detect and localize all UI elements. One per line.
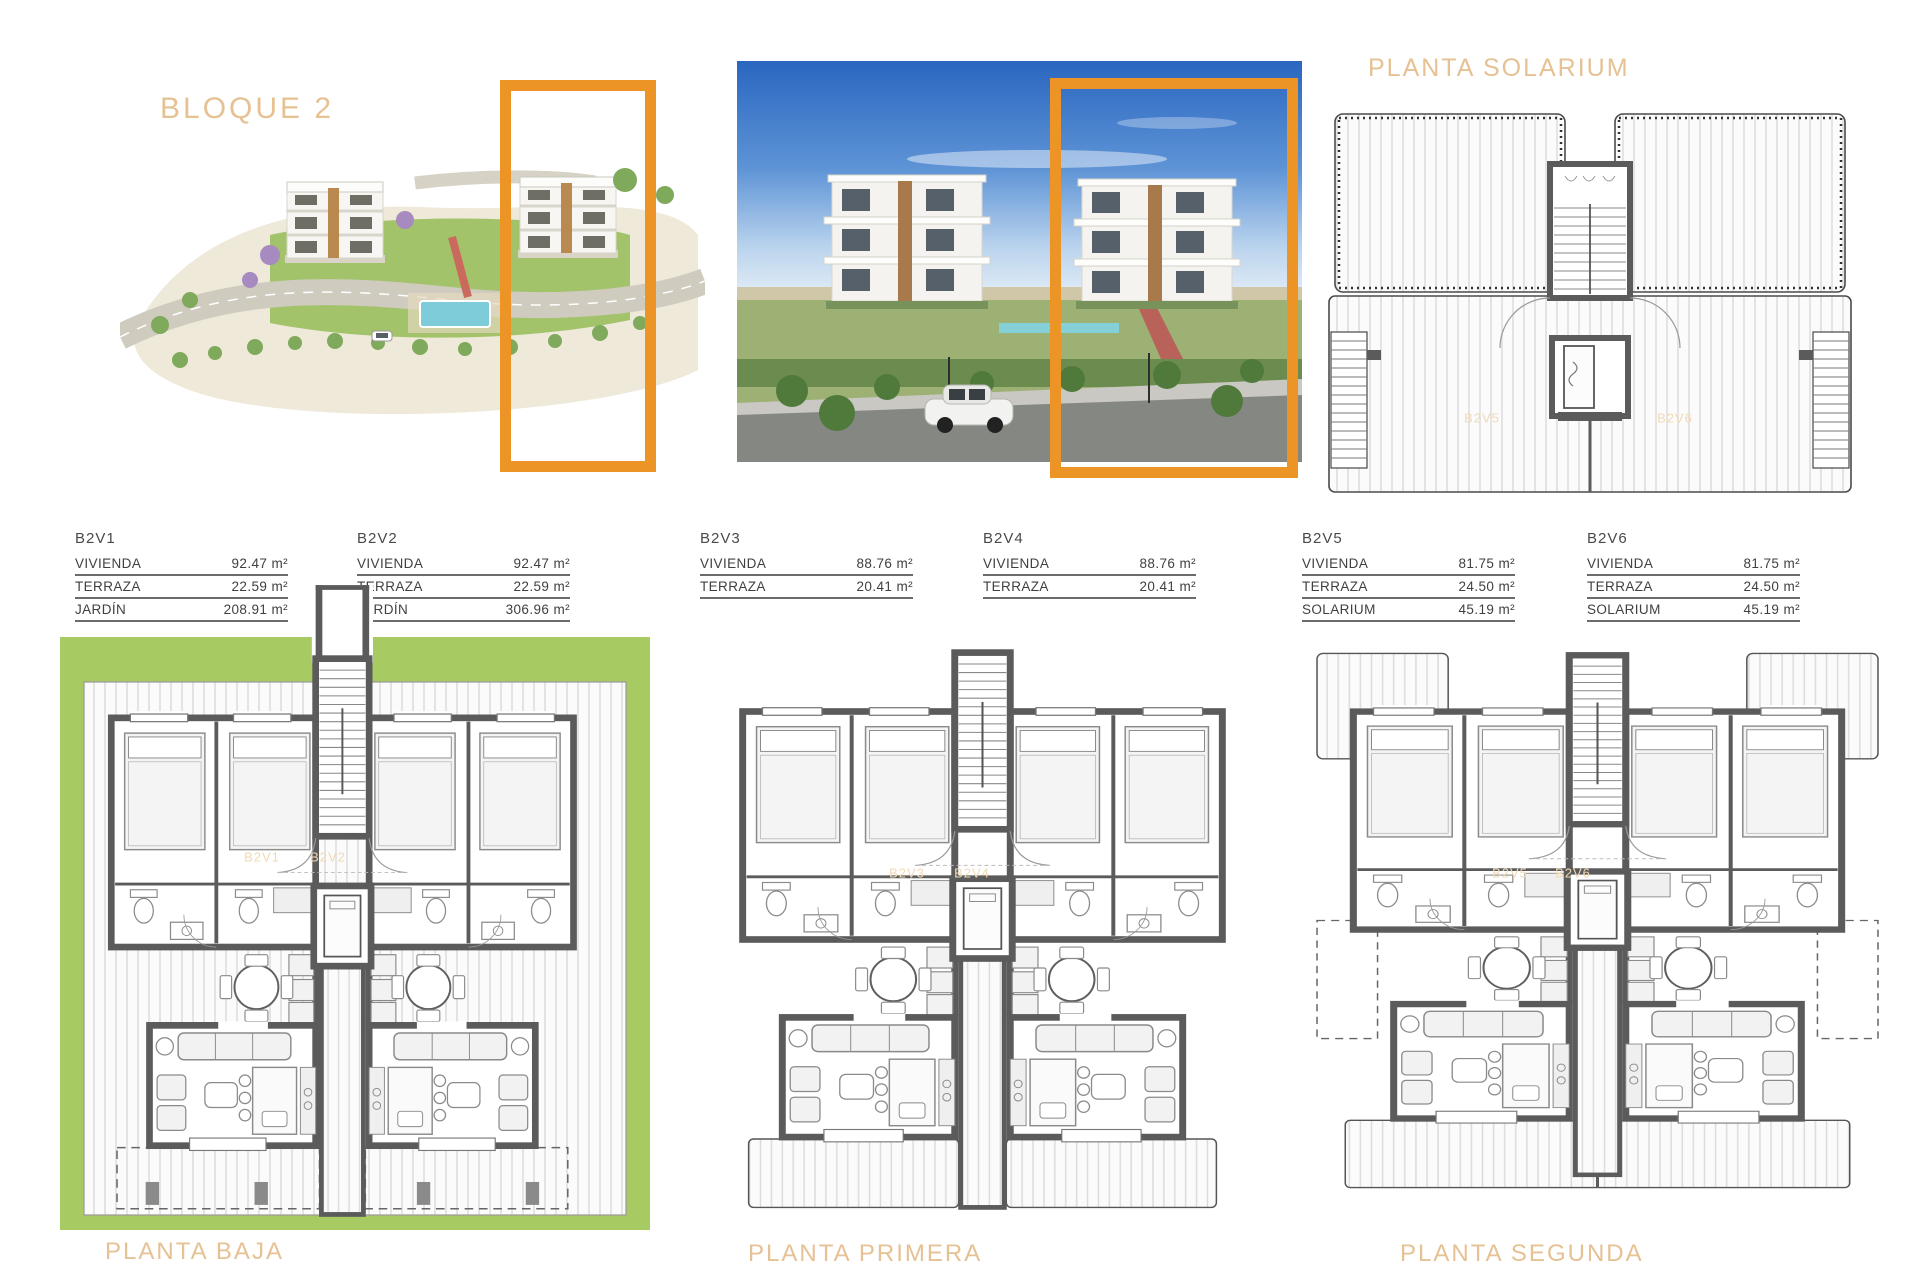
elevator — [314, 886, 371, 966]
unit-table-b2v6: B2V6 VIVIENDA81.75 m² TERRAZA24.50 m² SO… — [1587, 530, 1800, 623]
segunda-plan-title: PLANTA SEGUNDA — [1400, 1240, 1644, 1268]
baja-plan-title: PLANTA BAJA — [105, 1238, 284, 1266]
elevator — [1567, 871, 1628, 947]
elevator — [1552, 338, 1628, 416]
floor-plan-segunda: B2V5 B2V6 — [1315, 648, 1880, 1193]
highlight-box-aerial — [500, 80, 656, 472]
unit-name: B2V6 — [1587, 530, 1800, 547]
row-label: TERRAZA — [700, 579, 766, 594]
unit-name: B2V2 — [357, 530, 570, 547]
floor-plan-solarium: B2V5 B2V6 — [1325, 100, 1855, 505]
floor-plan-primera: B2V3 B2V4 — [705, 645, 1260, 1215]
row-value: 24.50 m² — [1459, 579, 1515, 594]
row-value: 81.75 m² — [1744, 556, 1800, 571]
primera-plan-title: PLANTA PRIMERA — [748, 1240, 982, 1268]
row-value: 88.76 m² — [857, 556, 913, 571]
row-label: VIVIENDA — [75, 556, 141, 571]
unit-label: B2V6 — [1657, 411, 1693, 426]
table-row: VIVIENDA92.47 m² — [357, 554, 570, 576]
row-value: 92.47 m² — [514, 556, 570, 571]
row-value: 92.47 m² — [232, 556, 288, 571]
unit-name: B2V4 — [983, 530, 1196, 547]
table-row: SOLARIUM45.19 m² — [1587, 600, 1800, 622]
table-row: TERRAZA20.41 m² — [983, 577, 1196, 599]
unit-right — [1626, 705, 1842, 1123]
unit-table-b2v4: B2V4 VIVIENDA88.76 m² TERRAZA20.41 m² — [983, 530, 1196, 600]
unit-label: B2V1 — [244, 850, 280, 865]
unit-right — [1010, 705, 1222, 1142]
row-label: VIVIENDA — [1587, 556, 1653, 571]
unit-name: B2V3 — [700, 530, 913, 547]
table-row: VIVIENDA88.76 m² — [700, 554, 913, 576]
floor-plan-baja: B2V1 B2V2 — [60, 585, 650, 1230]
row-label: VIVIENDA — [983, 556, 1049, 571]
row-value: 20.41 m² — [857, 579, 913, 594]
unit-label: B2V3 — [889, 866, 925, 881]
aerial-building-left — [285, 182, 385, 263]
unit-name: B2V5 — [1302, 530, 1515, 547]
row-label: TERRAZA — [1302, 579, 1368, 594]
row-label: TERRAZA — [1587, 579, 1653, 594]
table-row: VIVIENDA81.75 m² — [1302, 554, 1515, 576]
row-label: SOLARIUM — [1587, 602, 1661, 617]
brochure-page: BLOQUE 2 — [0, 0, 1920, 1280]
row-value: 20.41 m² — [1140, 579, 1196, 594]
table-row: TERRAZA24.50 m² — [1302, 577, 1515, 599]
table-row: TERRAZA24.50 m² — [1587, 577, 1800, 599]
row-label: VIVIENDA — [1302, 556, 1368, 571]
unit-label: B2V5 — [1492, 866, 1528, 881]
row-value: 88.76 m² — [1140, 556, 1196, 571]
table-row: VIVIENDA88.76 m² — [983, 554, 1196, 576]
unit-table-b2v3: B2V3 VIVIENDA88.76 m² TERRAZA20.41 m² — [700, 530, 913, 600]
table-row: VIVIENDA92.47 m² — [75, 554, 288, 576]
unit-left — [1353, 705, 1569, 1123]
elevator — [953, 879, 1012, 959]
row-value: 24.50 m² — [1744, 579, 1800, 594]
aerial-car — [372, 331, 392, 341]
unit-name: B2V1 — [75, 530, 288, 547]
row-value: 45.19 m² — [1744, 602, 1800, 617]
photo-building-left — [824, 175, 990, 309]
row-label: VIVIENDA — [357, 556, 423, 571]
highlight-box-photo — [1050, 78, 1298, 478]
unit-table-b2v5: B2V5 VIVIENDA81.75 m² TERRAZA24.50 m² SO… — [1302, 530, 1515, 623]
table-row: VIVIENDA81.75 m² — [1587, 554, 1800, 576]
table-row: TERRAZA20.41 m² — [700, 577, 913, 599]
solarium-plan-title: PLANTA SOLARIUM — [1368, 54, 1630, 83]
unit-left — [743, 705, 955, 1142]
row-value: 81.75 m² — [1459, 556, 1515, 571]
row-label: TERRAZA — [983, 579, 1049, 594]
unit-label: B2V2 — [310, 850, 346, 865]
row-label: SOLARIUM — [1302, 602, 1376, 617]
row-label: VIVIENDA — [700, 556, 766, 571]
row-value: 45.19 m² — [1459, 602, 1515, 617]
table-row: SOLARIUM45.19 m² — [1302, 600, 1515, 622]
unit-label: B2V4 — [954, 866, 990, 881]
unit-label: B2V5 — [1464, 411, 1500, 426]
unit-label: B2V6 — [1555, 866, 1591, 881]
